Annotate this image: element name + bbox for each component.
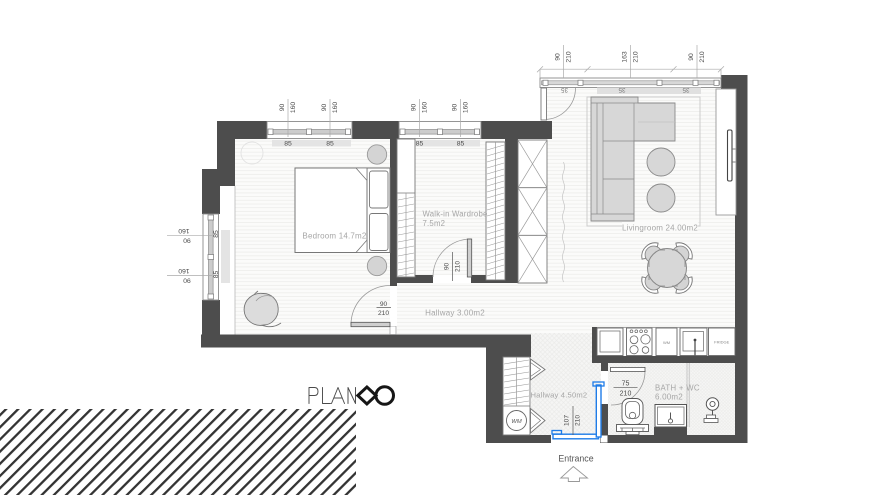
svg-text:85: 85 — [213, 230, 220, 238]
svg-text:210: 210 — [633, 51, 640, 63]
svg-text:90: 90 — [555, 53, 562, 61]
svg-text:Bedroom 14.7m2: Bedroom 14.7m2 — [302, 232, 367, 241]
svg-text:90: 90 — [183, 277, 191, 284]
svg-text:35: 35 — [561, 86, 568, 93]
svg-text:107: 107 — [564, 415, 571, 426]
svg-text:210: 210 — [455, 261, 462, 272]
svg-text:160: 160 — [178, 267, 190, 274]
svg-text:210: 210 — [575, 415, 582, 426]
svg-text:85: 85 — [213, 271, 220, 279]
svg-text:90: 90 — [321, 104, 328, 112]
svg-text:90: 90 — [279, 104, 286, 112]
svg-text:90: 90 — [444, 263, 451, 271]
svg-text:160: 160 — [178, 227, 190, 234]
svg-text:90: 90 — [411, 104, 418, 112]
svg-text:Hallway 4.50m2: Hallway 4.50m2 — [531, 391, 588, 400]
svg-text:163: 163 — [622, 51, 629, 63]
svg-text:90: 90 — [688, 53, 695, 61]
svg-text:Livingroom 24.00m2: Livingroom 24.00m2 — [622, 224, 698, 233]
svg-text:Walk-in Wardrobe: Walk-in Wardrobe — [423, 210, 488, 219]
svg-text:85: 85 — [457, 141, 465, 148]
svg-text:85: 85 — [416, 141, 424, 148]
svg-text:90: 90 — [452, 104, 459, 112]
svg-text:WM: WM — [511, 419, 521, 425]
svg-text:90: 90 — [380, 301, 388, 308]
svg-text:Hallway 3.00m2: Hallway 3.00m2 — [425, 309, 485, 318]
svg-text:160: 160 — [463, 102, 470, 114]
svg-text:210: 210 — [620, 390, 632, 397]
svg-text:35: 35 — [682, 86, 689, 93]
svg-text:75: 75 — [622, 380, 630, 387]
svg-text:FRIDGE: FRIDGE — [714, 340, 729, 345]
svg-text:160: 160 — [290, 102, 297, 114]
svg-text:160: 160 — [422, 102, 429, 114]
svg-text:210: 210 — [699, 51, 706, 63]
svg-text:BATH + WC: BATH + WC — [655, 384, 700, 393]
svg-text:35: 35 — [618, 86, 625, 93]
svg-text:6.00m2: 6.00m2 — [655, 393, 683, 402]
svg-text:160: 160 — [332, 102, 339, 114]
svg-text:85: 85 — [284, 141, 292, 148]
svg-text:90: 90 — [183, 237, 191, 244]
svg-text:210: 210 — [378, 310, 389, 317]
svg-text:7.5m2: 7.5m2 — [423, 219, 446, 228]
svg-text:85: 85 — [326, 141, 334, 148]
svg-text:Entrance: Entrance — [558, 454, 593, 464]
svg-text:210: 210 — [566, 51, 573, 63]
svg-text:WM: WM — [663, 340, 670, 345]
